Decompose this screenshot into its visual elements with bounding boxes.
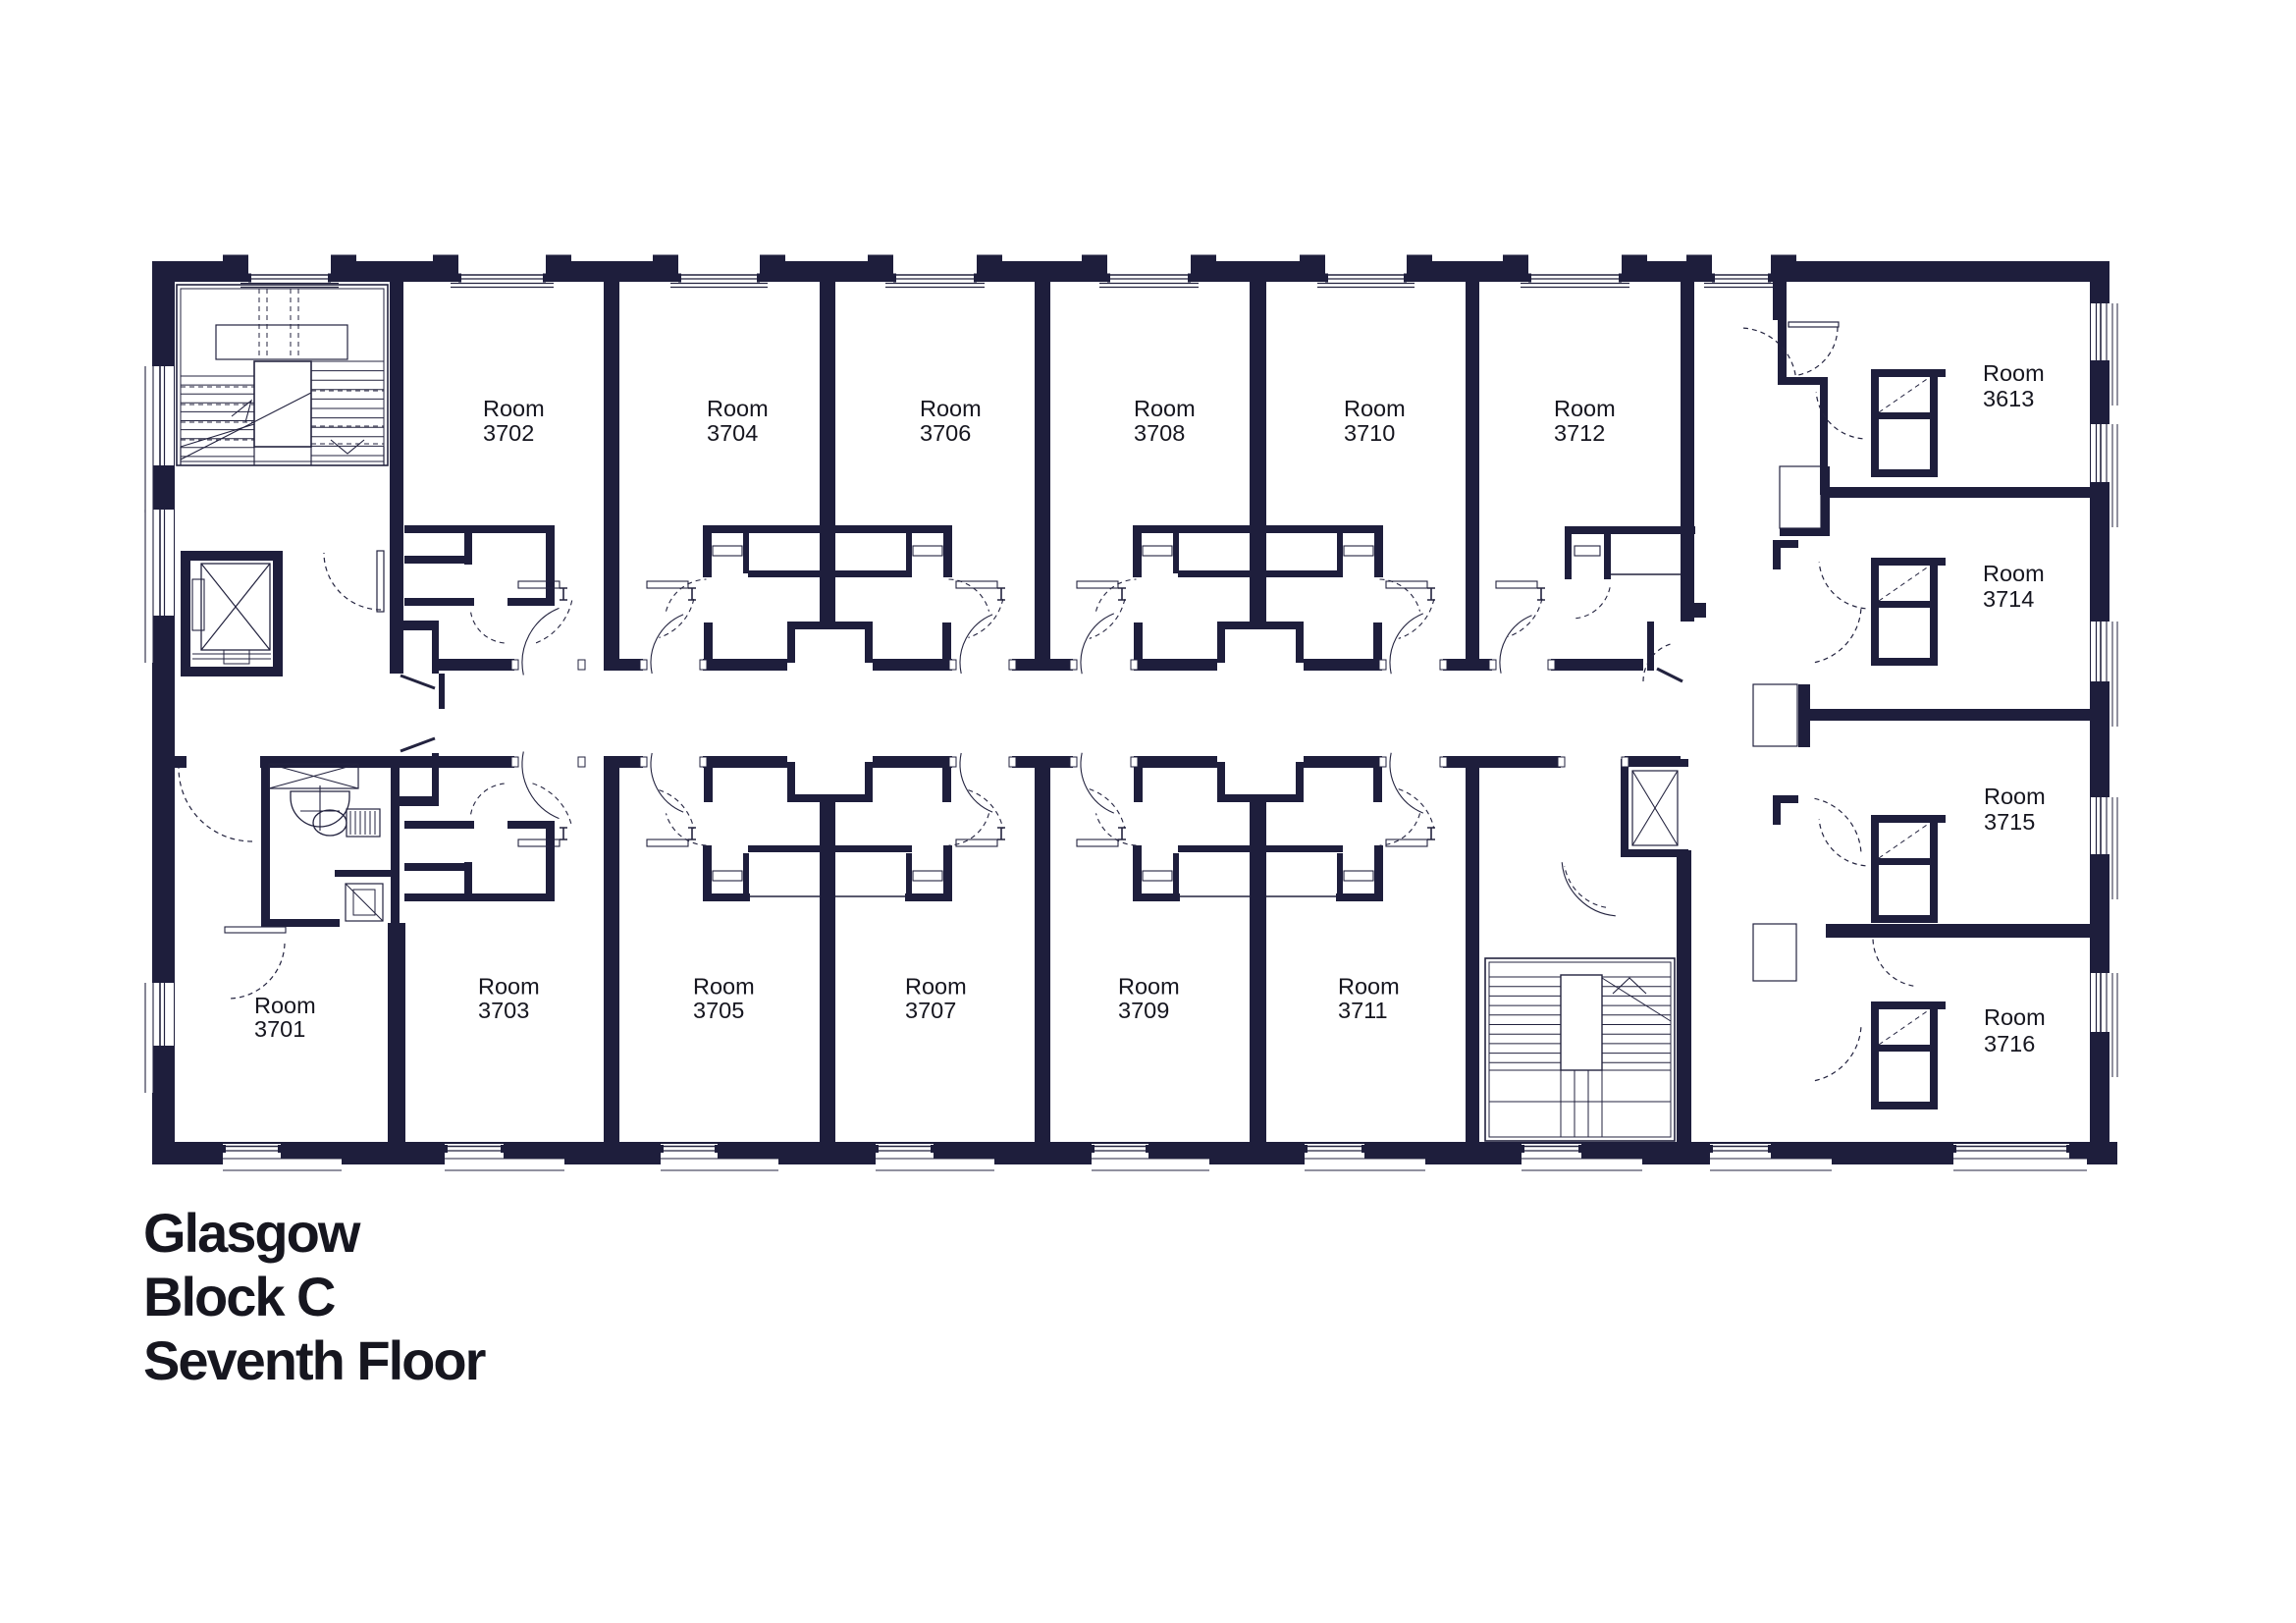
svg-text:Room: Room	[1338, 974, 1400, 1000]
svg-text:Glasgow: Glasgow	[143, 1202, 361, 1264]
svg-text:Room: Room	[707, 396, 769, 421]
svg-text:3705: 3705	[693, 998, 744, 1023]
svg-text:3703: 3703	[478, 998, 529, 1023]
svg-text:3716: 3716	[1984, 1031, 2035, 1056]
svg-text:Room: Room	[1554, 396, 1616, 421]
svg-text:3704: 3704	[707, 420, 758, 446]
svg-text:Room: Room	[254, 993, 316, 1018]
svg-text:Room: Room	[1118, 974, 1180, 1000]
svg-text:3711: 3711	[1338, 998, 1388, 1023]
svg-text:Seventh Floor: Seventh Floor	[143, 1329, 486, 1391]
svg-text:3613: 3613	[1983, 386, 2034, 411]
svg-text:Room: Room	[483, 396, 545, 421]
svg-text:Room: Room	[1344, 396, 1406, 421]
svg-text:3701: 3701	[254, 1016, 305, 1042]
svg-text:3707: 3707	[905, 998, 956, 1023]
svg-text:Room: Room	[693, 974, 755, 1000]
svg-text:3702: 3702	[483, 420, 534, 446]
svg-text:Room: Room	[478, 974, 540, 1000]
svg-text:3709: 3709	[1118, 998, 1169, 1023]
svg-text:3710: 3710	[1344, 420, 1395, 446]
svg-text:3712: 3712	[1554, 420, 1605, 446]
svg-text:Room: Room	[1134, 396, 1196, 421]
svg-text:Room: Room	[905, 974, 967, 1000]
svg-text:Room: Room	[1983, 360, 2045, 386]
svg-text:3706: 3706	[920, 420, 971, 446]
svg-text:Room: Room	[920, 396, 982, 421]
svg-text:Room: Room	[1984, 784, 2046, 809]
svg-text:3714: 3714	[1983, 586, 2034, 612]
svg-text:Room: Room	[1983, 561, 2045, 586]
svg-text:Block C: Block C	[143, 1266, 335, 1327]
svg-text:3715: 3715	[1984, 809, 2035, 835]
svg-text:3708: 3708	[1134, 420, 1185, 446]
svg-text:Room: Room	[1984, 1004, 2046, 1030]
